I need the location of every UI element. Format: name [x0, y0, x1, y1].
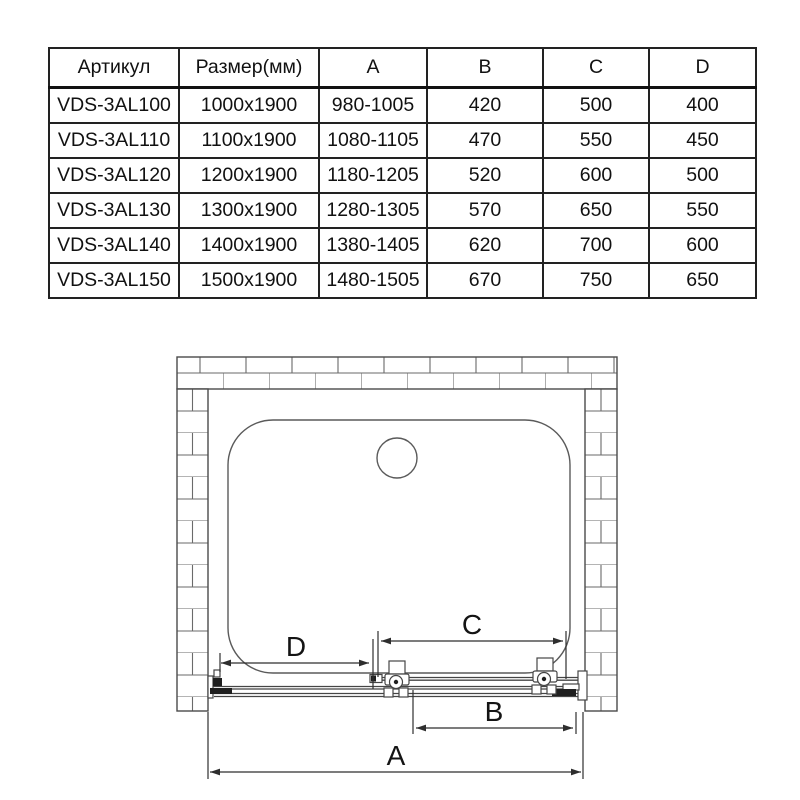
table-cell: 1400x1900 [179, 228, 319, 263]
table-cell: 750 [543, 263, 649, 298]
table-cell: 470 [427, 123, 543, 158]
table-cell: 570 [427, 193, 543, 228]
spec-table: Артикул Размер(мм) A B C D VDS-3AL100 10… [48, 47, 757, 299]
brick-wall-left [177, 389, 208, 711]
table-cell: 600 [543, 158, 649, 193]
table-row: VDS-3AL120 1200x1900 1180-1205 520 600 5… [49, 158, 756, 193]
table-cell-article: VDS-3AL120 [49, 158, 179, 193]
column-header-d: D [649, 48, 756, 88]
table-cell: 520 [427, 158, 543, 193]
table-cell: 650 [649, 263, 756, 298]
table-cell: 1300x1900 [179, 193, 319, 228]
column-header-b: B [427, 48, 543, 88]
table-cell: 670 [427, 263, 543, 298]
table-cell: 550 [649, 193, 756, 228]
table-cell: 620 [427, 228, 543, 263]
table-cell-article: VDS-3AL110 [49, 123, 179, 158]
table-cell: 550 [543, 123, 649, 158]
column-header-article: Артикул [49, 48, 179, 88]
table-cell: 1100x1900 [179, 123, 319, 158]
installation-drawing: D C B A [0, 340, 800, 800]
dim-label-a: A [387, 740, 406, 771]
table-cell: 1500x1900 [179, 263, 319, 298]
table-cell: 1200x1900 [179, 158, 319, 193]
table-cell: 980-1005 [319, 88, 427, 124]
table-cell-article: VDS-3AL140 [49, 228, 179, 263]
table-cell: 450 [649, 123, 756, 158]
table-cell: 650 [543, 193, 649, 228]
dim-label-b: B [485, 696, 504, 727]
left-wall-profile [208, 670, 232, 698]
table-cell-article: VDS-3AL130 [49, 193, 179, 228]
table-cell: 1000x1900 [179, 88, 319, 124]
table-cell: 1280-1305 [319, 193, 427, 228]
table-cell: 1080-1105 [319, 123, 427, 158]
table-row: VDS-3AL110 1100x1900 1080-1105 470 550 4… [49, 123, 756, 158]
table-row: VDS-3AL140 1400x1900 1380-1405 620 700 6… [49, 228, 756, 263]
table-cell: 700 [543, 228, 649, 263]
spec-sheet-page: Артикул Размер(мм) A B C D VDS-3AL100 10… [0, 0, 800, 800]
table-cell: 1380-1405 [319, 228, 427, 263]
table-cell: 1180-1205 [319, 158, 427, 193]
brick-wall-right [585, 389, 617, 711]
column-header-a: A [319, 48, 427, 88]
dim-label-c: C [462, 609, 482, 640]
table-cell: 500 [543, 88, 649, 124]
roller-left [384, 661, 409, 697]
shower-tray [228, 420, 570, 673]
dim-label-d: D [286, 631, 306, 662]
column-header-c: C [543, 48, 649, 88]
brick-wall-top [177, 357, 617, 389]
table-row: VDS-3AL130 1300x1900 1280-1305 570 650 5… [49, 193, 756, 228]
drain-circle [377, 438, 417, 478]
table-cell: 600 [649, 228, 756, 263]
table-cell-article: VDS-3AL100 [49, 88, 179, 124]
table-cell-article: VDS-3AL150 [49, 263, 179, 298]
table-cell: 500 [649, 158, 756, 193]
table-row: VDS-3AL150 1500x1900 1480-1505 670 750 6… [49, 263, 756, 298]
table-cell: 420 [427, 88, 543, 124]
table-row: VDS-3AL100 1000x1900 980-1005 420 500 40… [49, 88, 756, 124]
table-cell: 400 [649, 88, 756, 124]
table-header-row: Артикул Размер(мм) A B C D [49, 48, 756, 88]
dimension-d: D [220, 631, 373, 689]
table-cell: 1480-1505 [319, 263, 427, 298]
dimension-a: A [208, 712, 583, 779]
column-header-size: Размер(мм) [179, 48, 319, 88]
